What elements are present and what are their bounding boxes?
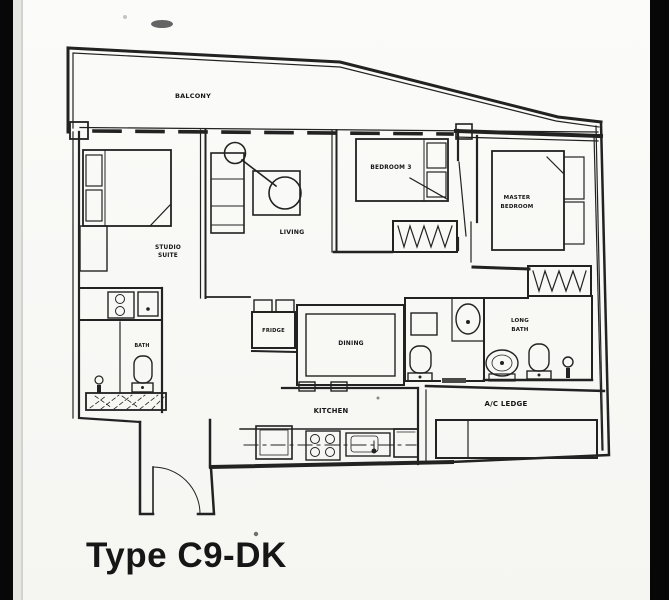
toilet — [132, 356, 153, 392]
room-living: LIVING — [211, 143, 304, 237]
fridge-counter — [256, 426, 292, 459]
chair — [331, 382, 347, 391]
master-bedroom-label: BEDROOM — [501, 204, 534, 210]
wardrobe — [528, 266, 591, 296]
sink — [138, 292, 158, 316]
fridge-label: FRIDGE — [262, 328, 285, 334]
bathtub-basin — [486, 350, 518, 381]
living-label: LIVING — [280, 229, 305, 236]
room-kitchen: KITCHEN — [240, 388, 426, 464]
dining-label: DINING — [338, 340, 364, 347]
tap-icon — [95, 376, 103, 393]
wardrobe — [393, 221, 457, 252]
door-swing-arc — [153, 467, 200, 514]
studio-suite-label: STUDIO — [155, 245, 181, 251]
entrance-door — [153, 467, 200, 514]
plan-type-title: Type C9-DK — [86, 536, 287, 576]
toilet — [527, 344, 551, 379]
shower-basin — [456, 304, 480, 334]
ac-ledge-grille — [436, 420, 597, 458]
bedroom3-door-leaf — [459, 162, 466, 236]
vanity — [411, 313, 437, 335]
door-threshold — [442, 378, 466, 383]
toilet — [408, 346, 432, 381]
bedroom3-label: BEDROOM 3 — [370, 165, 411, 171]
shower-head-icon — [563, 357, 573, 378]
studio-bed — [83, 150, 171, 226]
sofa — [211, 153, 244, 233]
floor-plan-page: BALCONY STUDIO SUITE — [0, 0, 669, 600]
ac-ledge: A/C LEDGE — [426, 386, 604, 458]
chair — [299, 382, 315, 391]
studio-bath: BATH — [86, 322, 166, 410]
room-common-bath — [405, 298, 484, 383]
kitchen-label: KITCHEN — [314, 407, 349, 415]
room-balcony: BALCONY — [175, 92, 211, 100]
fridge-box: FRIDGE — [252, 300, 295, 352]
master-bedroom-label: MASTER — [504, 195, 531, 201]
long-bath-label: BATH — [511, 327, 528, 333]
appliance — [394, 429, 418, 457]
closet-shelves — [80, 226, 107, 271]
ac-ledge-label: A/C LEDGE — [485, 400, 528, 408]
long-bath-label: LONG — [511, 318, 529, 324]
hob — [108, 292, 134, 318]
balcony-label: BALCONY — [175, 92, 211, 100]
bath-label: BATH — [134, 343, 149, 349]
dining-table: DINING — [297, 305, 404, 391]
room-master-bedroom: MASTER BEDROOM — [471, 136, 591, 296]
photo-specks — [123, 15, 380, 536]
studio-suite-label: SUITE — [158, 253, 178, 259]
coffee-table — [253, 171, 300, 215]
room-bedroom-3: BEDROOM 3 — [332, 130, 466, 252]
shower-tray — [86, 393, 166, 410]
floor-plan-drawing: BALCONY STUDIO SUITE — [0, 0, 669, 600]
